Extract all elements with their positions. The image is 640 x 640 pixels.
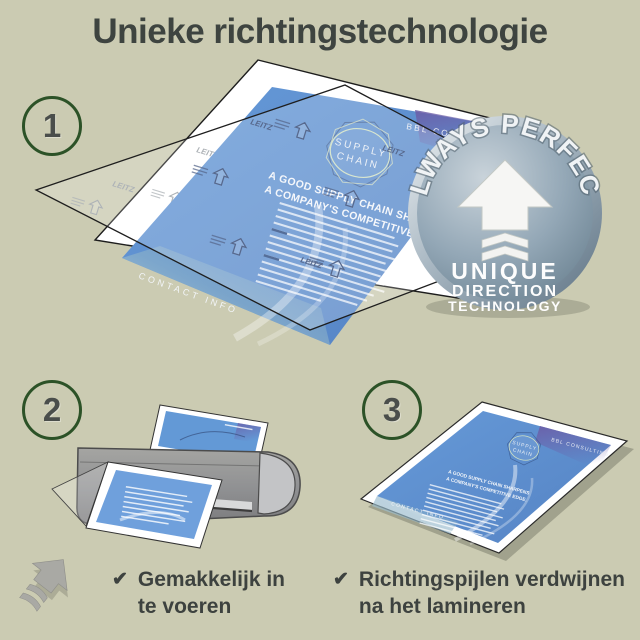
caption-arrows-disappear-line2: na het lamineren xyxy=(359,593,625,620)
caption-easy-feed-line2: te voeren xyxy=(138,593,285,620)
step-3-number: 3 xyxy=(383,391,401,429)
caption-easy-feed: ✔ Gemakkelijk in te voeren xyxy=(112,566,285,620)
illustration-canvas: LEITZ LEITZ BBL CONSULTING SUPPLY xyxy=(0,0,640,640)
caption-arrows-disappear: ✔ Richtingspijlen verdwijnen na het lami… xyxy=(333,566,625,620)
step-1-number: 1 xyxy=(43,107,61,145)
step-2-number: 2 xyxy=(43,391,61,429)
caption-arrows-disappear-line1: Richtingspijlen verdwijnen xyxy=(359,566,625,593)
caption-easy-feed-line1: Gemakkelijk in xyxy=(138,566,285,593)
direction-arrow-icon xyxy=(11,546,85,621)
step-2-marker: 2 xyxy=(22,380,82,440)
step-1-marker: 1 xyxy=(22,96,82,156)
infographic: Unieke richtingstechnologie xyxy=(0,0,640,640)
badge-line-technology: TECHNOLOGY xyxy=(448,298,562,314)
check-icon: ✔ xyxy=(112,566,128,593)
check-icon: ✔ xyxy=(333,566,349,593)
badge-line-unique: UNIQUE xyxy=(451,258,558,284)
step-3-marker: 3 xyxy=(362,380,422,440)
